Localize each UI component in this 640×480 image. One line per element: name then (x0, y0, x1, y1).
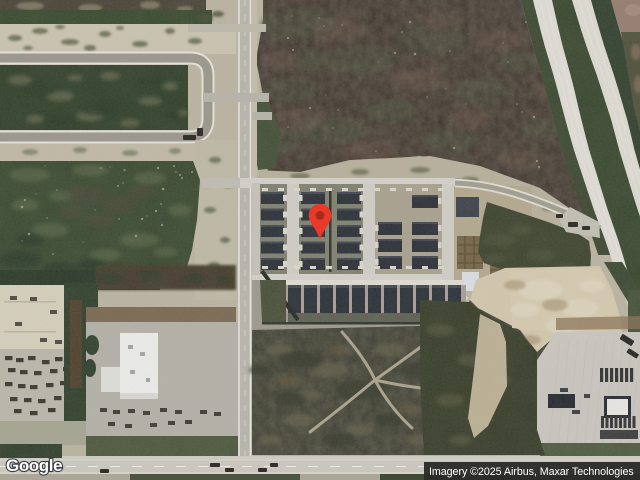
svg-text:Imagery ©2025 Airbus, Maxar Te: Imagery ©2025 Airbus, Maxar Technologies (429, 466, 634, 478)
svg-text:Google: Google (6, 456, 62, 475)
